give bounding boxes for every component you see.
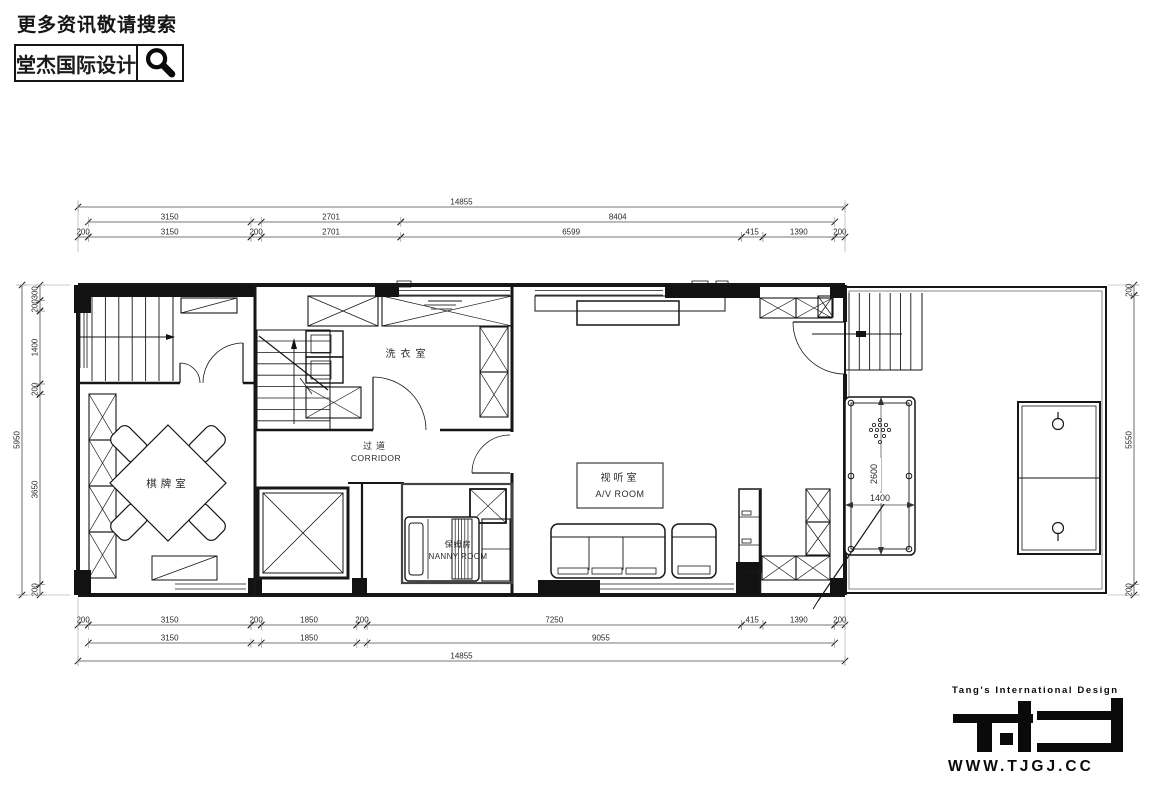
tid-logo-icon xyxy=(945,698,1131,756)
dim-label: 9055 xyxy=(592,634,610,643)
nanny-room-label-cn: 保姆房 xyxy=(445,539,472,549)
dim-label: 1850 xyxy=(300,616,318,625)
floor-plan-drawing: 1485531502701840420031502002701659941513… xyxy=(0,0,1158,800)
logo-dot xyxy=(1000,733,1013,745)
chess-room-label: 棋牌室 xyxy=(146,477,190,490)
dim-label: 8404 xyxy=(609,213,627,222)
dim-label: 5950 xyxy=(13,431,22,449)
logo-i-bar xyxy=(1018,701,1031,752)
footer-tagline: Tang's International Design xyxy=(952,685,1132,696)
dim-label: 1850 xyxy=(300,634,318,643)
dim-label: 3150 xyxy=(161,213,179,222)
laundry-room-label: 洗衣室 xyxy=(386,347,431,360)
dim-label: 1400 xyxy=(31,338,40,356)
dim-label: 1390 xyxy=(790,616,808,625)
footer-logo: Tang's International Design WWW.TJGJ.CC xyxy=(938,682,1138,782)
av-room-label-en: A/V ROOM xyxy=(595,489,644,499)
floor-plan-poster: 更多资讯敬请搜索 堂杰国际设计 148553150270184042003150… xyxy=(0,0,1158,800)
dim-label: 3150 xyxy=(161,228,179,237)
corridor-label-cn: 过道 xyxy=(363,440,389,451)
dim-label: 300 xyxy=(31,286,40,300)
pool-length-dim: 2600 xyxy=(869,464,879,484)
dim-label: 7250 xyxy=(545,616,563,625)
dim-label: 14855 xyxy=(450,652,473,661)
dim-label: 3150 xyxy=(161,634,179,643)
dim-label: 2701 xyxy=(322,228,340,237)
dim-label: 1390 xyxy=(790,228,808,237)
pool-width-dim: 1400 xyxy=(870,493,890,503)
dim-label: 415 xyxy=(746,616,760,625)
dim-label: 6599 xyxy=(562,228,580,237)
dim-label: 5550 xyxy=(1125,431,1134,449)
dim-label: 3650 xyxy=(31,480,40,498)
logo-d-stem xyxy=(1111,698,1123,752)
dim-label: 14855 xyxy=(450,198,473,207)
dim-label: 415 xyxy=(746,228,760,237)
website-url: WWW.TJGJ.CC xyxy=(948,758,1094,776)
corridor-label-en: CORRIDOR xyxy=(351,453,401,463)
nanny-room-label-en: NANNY ROOM xyxy=(429,552,488,561)
dim-label: 2701 xyxy=(322,213,340,222)
av-room-label-cn: 视听室 xyxy=(601,471,640,484)
dim-label: 3150 xyxy=(161,616,179,625)
logo-t-stem xyxy=(977,714,992,752)
